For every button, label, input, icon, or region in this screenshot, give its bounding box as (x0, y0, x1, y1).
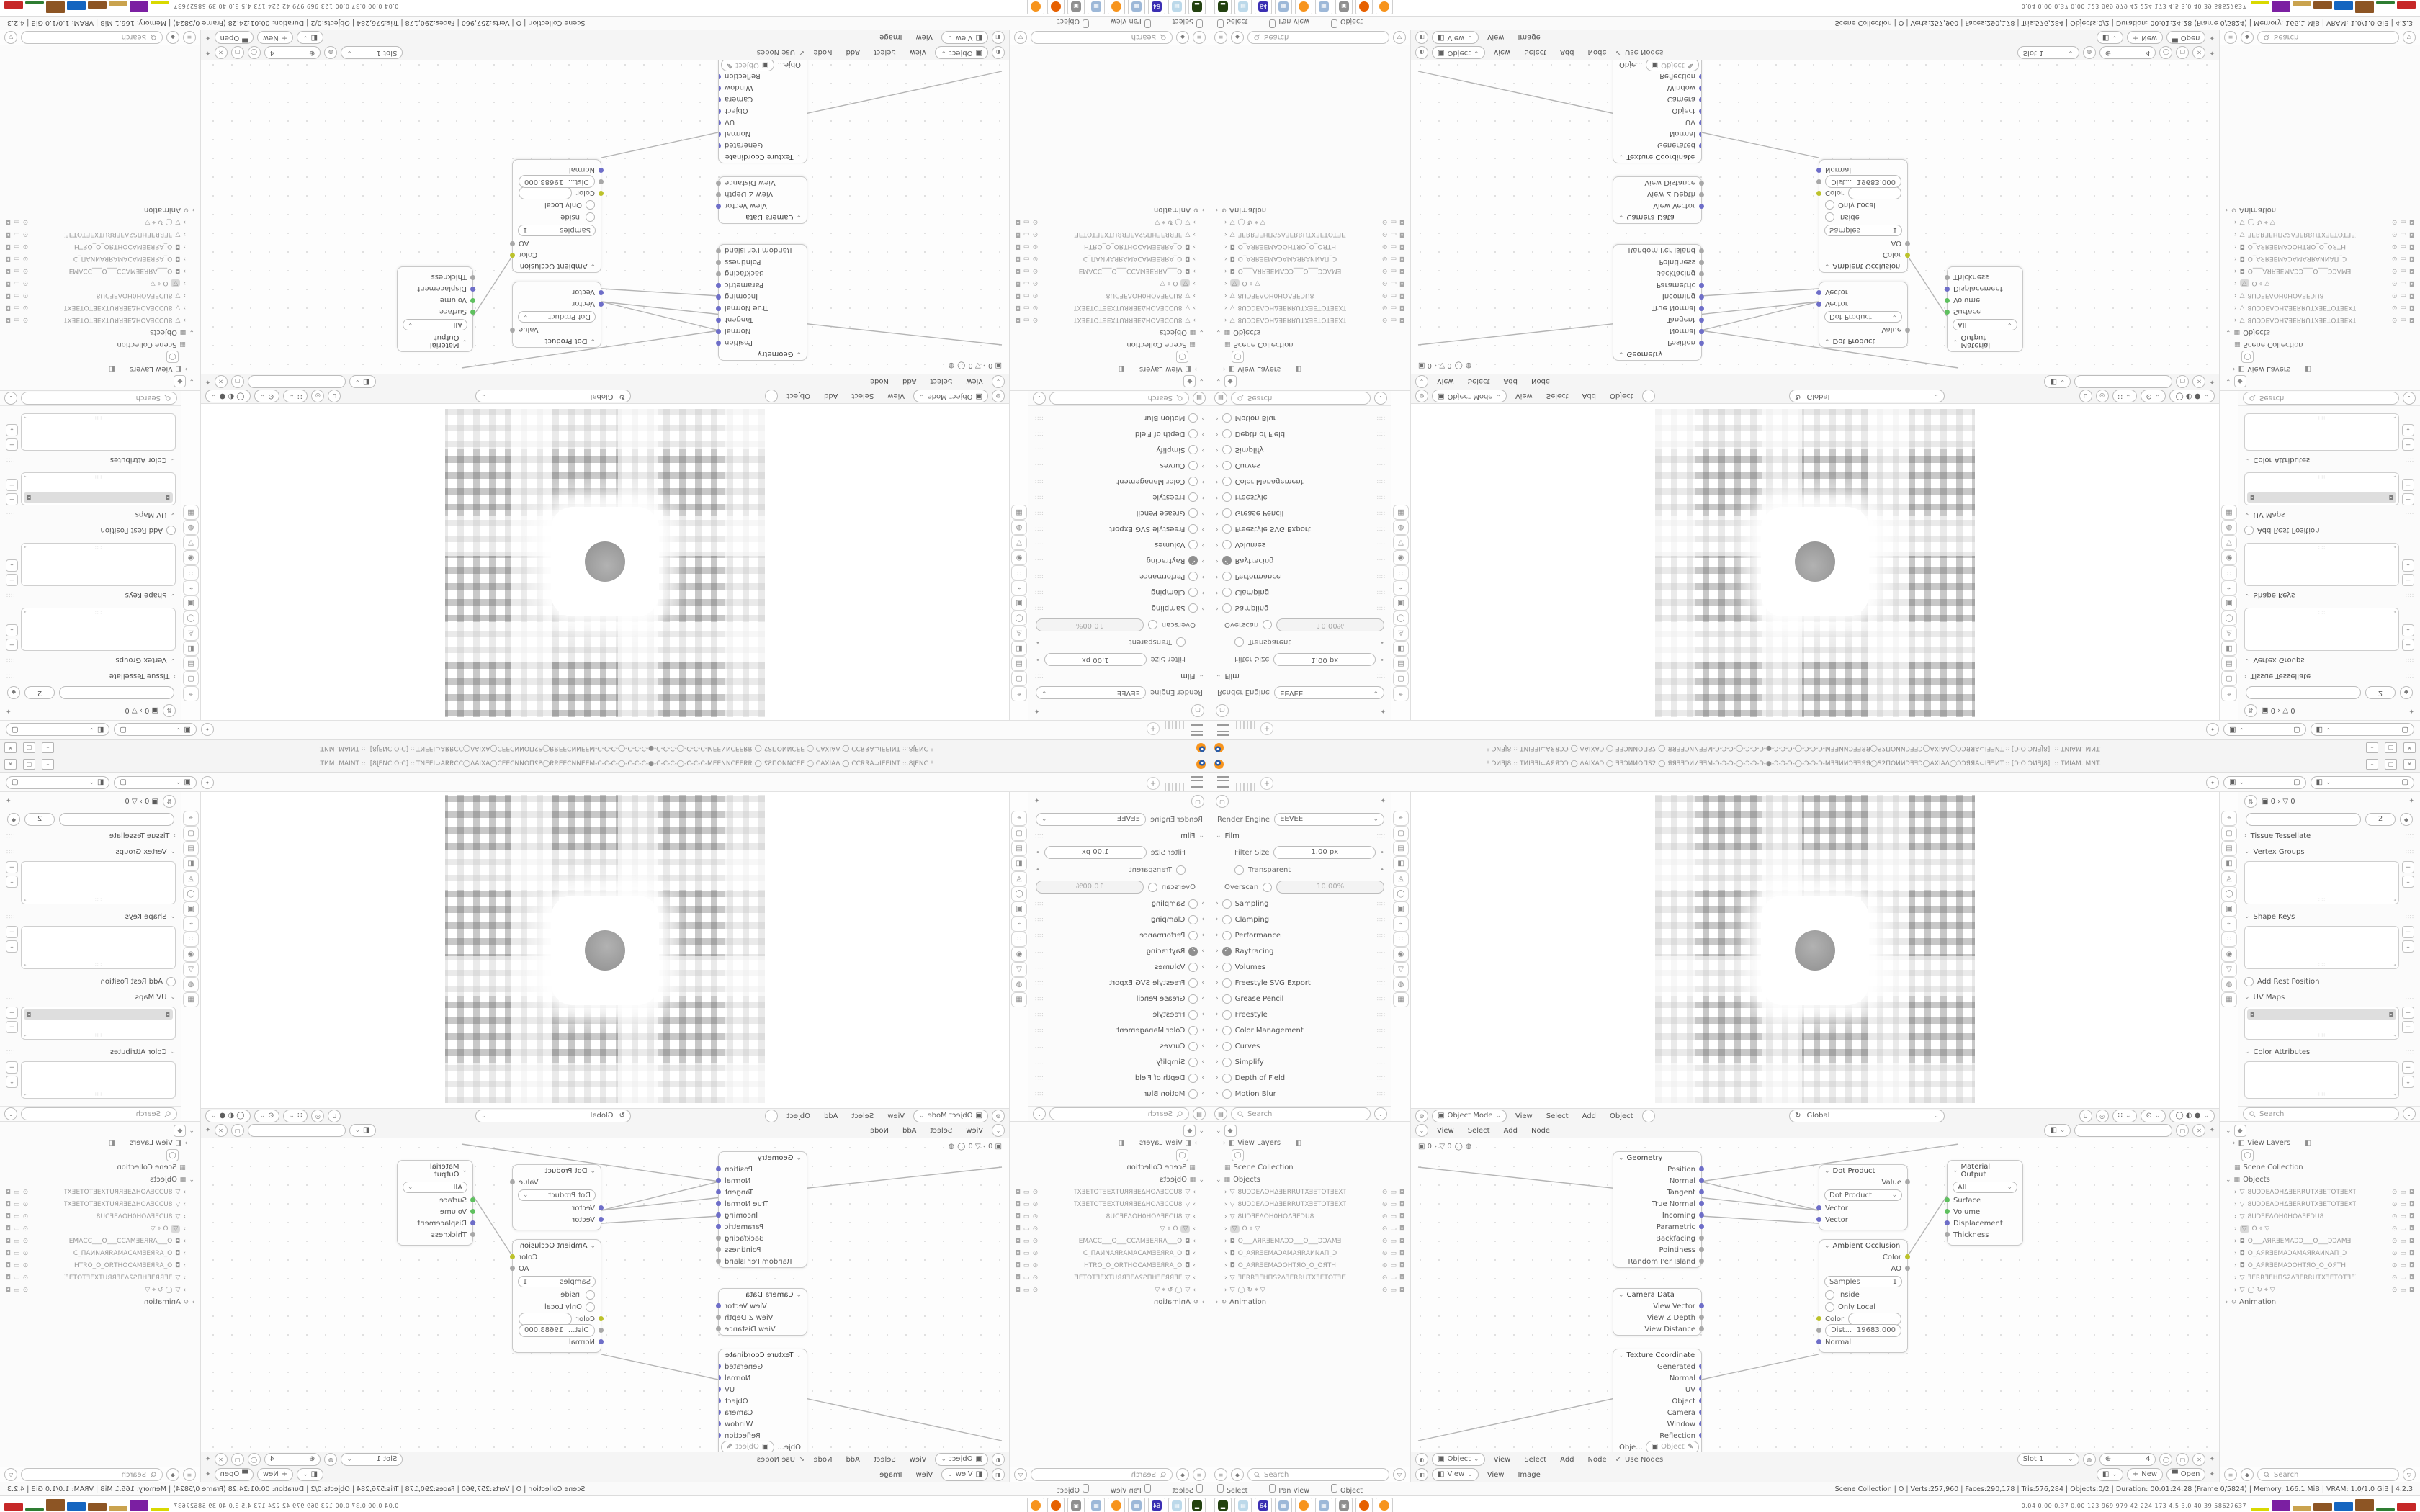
socket-dot[interactable] (1699, 1375, 1702, 1380)
properties-section-row[interactable]: › Color Management ∷∷ (1210, 1022, 1391, 1038)
funnel-filter-icon[interactable]: ▽ (1393, 1468, 1406, 1481)
disable-viewport-icon[interactable]: ▭ (1390, 243, 1397, 250)
hide-eye-icon[interactable]: ⊙ (2392, 292, 2398, 299)
hide-eye-icon[interactable]: ⊙ (23, 255, 29, 262)
image-view-dropdown[interactable]: ◧ View⌄ (1432, 1468, 1479, 1481)
shader-type-dropdown[interactable]: ▣ Object⌄ (935, 1453, 988, 1466)
menu-select[interactable]: Select (930, 1127, 952, 1135)
properties-tab-icon[interactable]: ◍ (1011, 977, 1027, 992)
menu-add[interactable]: Add (824, 1112, 838, 1120)
properties-tab-icon[interactable]: ⌁ (2221, 580, 2237, 595)
disable-viewport-icon[interactable]: ▭ (1390, 1238, 1397, 1245)
filter-icon-btn[interactable]: ◆ (2241, 31, 2254, 44)
disable-viewport-icon[interactable]: ▭ (14, 1287, 20, 1294)
options-dropdown-icon[interactable]: ⌄ (1033, 1107, 1046, 1120)
vertex-groups-listbox[interactable]: ∷∷◂ (2244, 608, 2399, 651)
view-layers-row[interactable]: ›◧View Layers◧ (3, 363, 197, 375)
outliner-object-row[interactable]: › ◘ O_AЯRƎEMAƆAMAЯRAИNAП_Ɔ ⊙▭◘ (3, 253, 197, 265)
taskbar-app-button[interactable] (1355, 1498, 1373, 1512)
fake-user-icon[interactable]: ◯ (2159, 1453, 2172, 1466)
taskbar-app-button[interactable]: ▣ (1067, 0, 1085, 14)
uv-map-item[interactable]: ◘◘ (2247, 1009, 2396, 1020)
outliner-object-row[interactable]: › ◘ O___AЯRƎEMAƆƆ___O___ƆƆAMƎ ⊙▭◘ (2223, 1235, 2417, 1247)
uv-maps-listbox[interactable]: ◘◘ ∷∷◂ (21, 472, 176, 505)
browse-material-icon[interactable]: ◍ (324, 46, 337, 59)
socket-dot[interactable] (599, 191, 604, 196)
outliner-object-row[interactable]: › ▽ 8UƆƎEΛOH0HOΛƎEƆU8 ⊙▭◘ (2223, 1210, 2417, 1223)
shading-mode-toggle[interactable]: ◯ ◐ ●⌄ (2169, 1110, 2215, 1122)
properties-section-row[interactable]: › Volumes ∷∷ (1028, 959, 1210, 975)
world-icon[interactable]: ◯ (2241, 351, 2254, 363)
socket-dot[interactable] (716, 1178, 721, 1183)
hide-eye-icon[interactable]: ⊙ (2392, 1262, 2398, 1269)
restore-button[interactable]: ▢ (23, 743, 35, 754)
outliner-search-input[interactable]: Search (2257, 1468, 2399, 1481)
close-button[interactable]: ✕ (2403, 743, 2416, 754)
socket-dot[interactable] (716, 329, 721, 334)
socket-dot[interactable] (599, 1328, 604, 1333)
properties-tab-icon[interactable]: ⌖ (183, 811, 199, 826)
copy-icon[interactable]: ▢ (2176, 1124, 2189, 1137)
node-canvas[interactable]: ▣ 0 › ▽ 0◯◍ ⌄Geometry Position Normal (201, 1138, 1009, 1452)
disable-viewport-icon[interactable]: ▭ (1390, 267, 1397, 274)
socket-dot[interactable] (1699, 1364, 1702, 1369)
disable-render-icon[interactable]: ◘ (6, 230, 11, 238)
disable-viewport-icon[interactable]: ▭ (1023, 1238, 1030, 1245)
section-checkbox[interactable] (1188, 1026, 1198, 1035)
add-button[interactable]: + (2402, 1007, 2414, 1019)
gizmo-toggle[interactable]: ∷⌄ (283, 1110, 308, 1122)
properties-tab-icon[interactable]: ◍ (183, 520, 199, 535)
disable-viewport-icon[interactable]: ▭ (1023, 1189, 1030, 1196)
properties-tab-icon[interactable]: ◧ (183, 641, 199, 656)
socket-dot[interactable] (1699, 120, 1702, 125)
outliner-object-row[interactable]: › ▽ O ⌖ ▽ ⊙▭◘ (1013, 277, 1207, 289)
disable-render-icon[interactable]: ◘ (1016, 243, 1021, 250)
disable-viewport-icon[interactable]: ▭ (1390, 1213, 1397, 1220)
view-layers-row[interactable]: ›◧View Layers◧ (2223, 363, 2417, 375)
socket-dot[interactable] (470, 1197, 475, 1202)
collapse-button[interactable]: ⌄ (6, 940, 18, 953)
socket-dot[interactable] (1699, 74, 1702, 79)
disable-viewport-icon[interactable]: ▭ (1023, 230, 1030, 238)
pin-icon[interactable]: ✦ (205, 1471, 211, 1478)
outliner-search-input[interactable]: Search (1031, 31, 1173, 44)
socket-dot[interactable] (718, 1410, 721, 1415)
browse-image-dropdown[interactable]: ◧⌄ (349, 1124, 376, 1137)
overscan-field[interactable]: 10.00% (1036, 618, 1144, 631)
outliner-object-row[interactable]: › ▽ 8UƆƆEΛOHΔƎERRUTXƎETOTƎEXT ⊙▭◘ (2223, 1198, 2417, 1210)
outliner-object-row[interactable]: › ▽ O ⌖ ▽ ⊙▭◘ (2223, 277, 2417, 289)
disable-render-icon[interactable]: ◘ (2409, 1225, 2414, 1233)
only-local-checkbox[interactable] (586, 200, 595, 210)
id-name-field[interactable] (248, 1124, 346, 1137)
properties-tab-icon[interactable]: ∷ (2221, 565, 2237, 580)
outliner-search-input[interactable]: Search (2257, 31, 2399, 44)
disable-viewport-icon[interactable]: ▭ (2400, 1250, 2406, 1257)
section-checkbox[interactable] (1188, 1010, 1198, 1020)
properties-tab-icon[interactable]: ◧ (183, 856, 199, 871)
color-attributes-section[interactable]: ⌄Color Attributes∷∷ (0, 1044, 181, 1060)
dot-product-node[interactable]: ⌄Dot Product Value Dot Product⌄ Vector (512, 1164, 601, 1230)
filter-icon-btn[interactable]: ◆ (1231, 31, 1244, 44)
section-checkbox[interactable] (1222, 1010, 1232, 1020)
pin-icon[interactable]: ✦ (1380, 798, 1386, 805)
properties-section-row[interactable]: › Raytracing ∷∷ (1028, 943, 1210, 959)
transparent-checkbox[interactable] (1176, 638, 1186, 647)
properties-tab-icon[interactable]: ⌖ (1393, 811, 1409, 826)
properties-tab-icon[interactable]: ▢ (2221, 671, 2237, 686)
section-checkbox[interactable] (1222, 462, 1232, 471)
section-checkbox[interactable] (1222, 477, 1232, 487)
section-checkbox[interactable] (1188, 994, 1198, 1004)
view-layer-selector[interactable]: ◧⌄▢ (6, 723, 109, 736)
taskbar-app-button[interactable] (1027, 1498, 1044, 1512)
properties-section-row[interactable]: › Clamping ∷∷ (1210, 912, 1391, 927)
gizmo-toggle[interactable]: ∷⌄ (2112, 390, 2137, 402)
filter-size-field[interactable]: 1.00 px (1044, 846, 1147, 859)
vertex-groups-section[interactable]: ⌄Vertex Groups∷∷ (0, 652, 181, 668)
only-local-checkbox[interactable] (586, 1302, 595, 1312)
disable-viewport-icon[interactable]: ▭ (1390, 1225, 1397, 1233)
disable-viewport-icon[interactable]: ▭ (1023, 218, 1030, 225)
disable-render-icon[interactable]: ◘ (6, 218, 11, 225)
properties-tab-icon[interactable]: ◉ (1011, 947, 1027, 962)
disable-viewport-icon[interactable]: ▭ (1390, 255, 1397, 262)
restore-button[interactable]: ▢ (2385, 743, 2397, 754)
view-layers-row[interactable]: ›◧View Layers◧ (1213, 363, 1407, 375)
disable-render-icon[interactable]: ◘ (2409, 1287, 2414, 1294)
collapse-button[interactable]: ⌄ (6, 559, 18, 572)
vector-math-operation-dropdown[interactable]: Dot Product⌄ (1824, 1189, 1902, 1201)
tissue-tessellate-section[interactable]: ›Tissue Tessellate∷∷ (0, 668, 181, 684)
menu-node[interactable]: Node (1588, 49, 1607, 57)
section-checkbox[interactable] (1222, 1074, 1232, 1083)
outliner-object-row[interactable]: › ◘ O___AЯRƎEMAƆƆ___O___ƆƆAMƎ ⊙▭◘ (3, 1235, 197, 1247)
shield-fake-user-icon[interactable]: ◆ (2400, 813, 2413, 826)
socket-dot[interactable] (1699, 192, 1704, 197)
hide-eye-icon[interactable]: ⊙ (1382, 255, 1388, 262)
properties-section-row[interactable]: › Simplify ∷∷ (1210, 442, 1391, 458)
shield-fake-user-icon[interactable]: ◆ (2400, 686, 2413, 699)
pin-icon[interactable]: ✦ (205, 49, 211, 56)
outliner-object-row[interactable]: › ▽ ◯ ↻ ⌖ ▽ ⊙▭◘ (1013, 1284, 1207, 1296)
hide-eye-icon[interactable]: ⊙ (2392, 1201, 2398, 1208)
properties-section-row[interactable]: › Freestyle ∷∷ (1210, 1007, 1391, 1022)
disable-render-icon[interactable]: ◘ (1016, 230, 1021, 238)
disable-viewport-icon[interactable]: ▭ (1023, 1287, 1030, 1294)
snap-magnet-icon[interactable]: U (328, 390, 341, 402)
properties-tab-icon[interactable]: ⌁ (183, 580, 199, 595)
filter-icon-btn[interactable]: ◆ (2241, 1468, 2254, 1481)
world-icon[interactable]: ◯ (1232, 1149, 1244, 1161)
taskbar-app-button[interactable]: 64 (1255, 1498, 1272, 1512)
socket-dot[interactable] (716, 1247, 721, 1252)
taskbar-app-button[interactable]: ▦ (1088, 0, 1105, 14)
taskbar-app-button[interactable] (1376, 1498, 1393, 1512)
properties-section-row[interactable]: › Depth of Field ∷∷ (1210, 426, 1391, 442)
properties-tab-icon[interactable]: ◉ (2221, 550, 2237, 565)
workspace-tab[interactable] (1179, 783, 1180, 791)
outliner-search-input[interactable]: Search (21, 1468, 163, 1481)
socket-dot[interactable] (1699, 143, 1702, 148)
transform-orientation-dropdown[interactable]: ↻Global⌄ (1789, 390, 1945, 402)
viewport-3d[interactable]: ⚙ ▣ Object Mode⌄ View Select Add Object … (1411, 792, 2219, 1123)
taskbar-app-button[interactable]: ▂ (1188, 0, 1206, 14)
socket-dot[interactable] (1945, 310, 1950, 315)
socket-dot[interactable] (1699, 1201, 1704, 1206)
section-checkbox[interactable] (1222, 525, 1232, 534)
properties-tab-icon[interactable]: ◬ (1393, 626, 1409, 641)
search-input[interactable]: Search (1049, 1107, 1189, 1120)
socket-dot[interactable] (716, 318, 721, 323)
pin-icon[interactable]: ✦ (6, 707, 12, 714)
disable-render-icon[interactable]: ◘ (6, 267, 11, 274)
add-button[interactable]: + (2402, 1061, 2414, 1074)
shader-type-dropdown[interactable]: ▣ Object⌄ (1432, 1453, 1485, 1466)
filter-menu-icon[interactable]: ▤ (1193, 392, 1206, 405)
color-attributes-section[interactable]: ⌄Color Attributes∷∷ (2238, 452, 2420, 468)
properties-tab-icon[interactable]: ◬ (1393, 871, 1409, 886)
menu-select[interactable]: Select (1546, 392, 1569, 400)
tool-settings-icon[interactable] (765, 1110, 778, 1122)
hide-eye-icon[interactable]: ⊙ (2392, 316, 2398, 323)
disable-viewport-icon[interactable]: ▭ (1390, 1201, 1397, 1208)
properties-section-row[interactable]: › Motion Blur ∷∷ (1028, 410, 1210, 426)
funnel-filter-icon[interactable]: ▽ (1393, 31, 1406, 44)
blend-file-icon[interactable]: ◆ (1224, 1125, 1237, 1137)
ambient-occlusion-node[interactable]: ⌄Ambient Occlusion Color AO Sample (512, 159, 601, 273)
disable-render-icon[interactable]: ◘ (2409, 230, 2414, 238)
hide-eye-icon[interactable]: ⊙ (2392, 1274, 2398, 1282)
menu-add[interactable]: Add (1560, 49, 1574, 57)
unlink-icon[interactable]: ✕ (2192, 1453, 2205, 1466)
disable-render-icon[interactable]: ◘ (2409, 243, 2414, 250)
properties-tab-icon[interactable]: ▣ (183, 901, 199, 917)
collapse-icon[interactable]: ⌄ (1415, 1124, 1428, 1137)
menu-image[interactable]: Image (1518, 1471, 1540, 1479)
outliner-object-row[interactable]: › ▽ 8UƆƎEΛOH0HOΛƎEƆU8 ⊙▭◘ (3, 1210, 197, 1223)
disable-viewport-icon[interactable]: ▭ (14, 1238, 20, 1245)
properties-section-row[interactable]: › Simplify ∷∷ (1028, 442, 1210, 458)
data-name-field[interactable] (59, 686, 174, 699)
properties-tab-icon[interactable]: ▽ (1393, 962, 1409, 977)
workspace-tab[interactable] (1236, 721, 1237, 729)
socket-dot[interactable] (1816, 1217, 1821, 1222)
properties-section-row[interactable]: › Clamping ∷∷ (1210, 585, 1391, 600)
use-nodes-label[interactable]: Use Nodes (757, 1456, 795, 1464)
pin-icon[interactable]: ✦ (1034, 707, 1040, 714)
properties-section-row[interactable]: › Clamping ∷∷ (1028, 585, 1210, 600)
menu-view[interactable]: View (910, 1456, 927, 1464)
properties-tab-icon[interactable]: ⌖ (1393, 686, 1409, 701)
color-attributes-listbox[interactable]: ∷∷◂ (21, 1061, 176, 1099)
disable-render-icon[interactable]: ◘ (1399, 316, 1404, 323)
outliner-object-row[interactable]: › ▽ ◯ ↻ ⌖ ▽ ⊙▭◘ (3, 1284, 197, 1296)
texture-coordinate-node[interactable]: ⌄Texture Coordinate Generated Normal (1613, 1349, 1702, 1452)
filter-icon-btn[interactable]: ◆ (1176, 1468, 1189, 1481)
add-button[interactable]: + (6, 574, 18, 586)
scene-collection-row[interactable]: ▦Scene Collection (1013, 1161, 1207, 1174)
shape-keys-listbox[interactable]: ∷∷◂ (21, 926, 176, 969)
editor-type-dropdown[interactable]: ◐ (992, 1453, 1005, 1466)
outliner-object-row[interactable]: › ▽ O ⌖ ▽ ⊙▭◘ (1013, 1223, 1207, 1235)
properties-tab-icon[interactable]: ◉ (2221, 947, 2237, 962)
properties-tab-icon[interactable]: ▢ (1393, 826, 1409, 841)
disable-render-icon[interactable]: ◘ (2409, 267, 2414, 274)
nav-icon[interactable]: ⇅ (163, 795, 176, 808)
socket-dot[interactable] (510, 253, 515, 258)
workspace-tab[interactable] (1183, 783, 1184, 791)
taskbar-app-button[interactable]: 64 (1148, 0, 1165, 14)
disable-render-icon[interactable]: ◘ (2409, 1250, 2414, 1257)
samples-field[interactable]: Samples1 (1824, 1276, 1902, 1287)
taskbar-app-button[interactable]: 64 (1255, 0, 1272, 14)
socket-dot[interactable] (1816, 302, 1821, 307)
disable-render-icon[interactable]: ◘ (6, 255, 11, 262)
pin-icon[interactable]: ✦ (205, 1127, 211, 1134)
menu-select[interactable]: Select (1546, 1112, 1569, 1120)
hide-eye-icon[interactable]: ⊙ (23, 1238, 29, 1245)
socket-dot[interactable] (716, 271, 721, 276)
menu-add[interactable]: Add (1504, 1127, 1518, 1135)
hamburger-menu-icon[interactable] (1217, 724, 1229, 736)
disable-viewport-icon[interactable]: ▭ (14, 292, 20, 299)
socket-dot[interactable] (599, 1316, 604, 1321)
disable-render-icon[interactable]: ◘ (1016, 1213, 1021, 1220)
slot-dropdown[interactable]: Slot 1⌄ (2017, 46, 2079, 59)
pin-icon[interactable]: ✦ (2206, 723, 2219, 736)
shading-mode-toggle[interactable]: ◯ ◐ ●⌄ (205, 390, 251, 402)
pin-icon[interactable]: ✦ (1034, 798, 1040, 805)
socket-dot[interactable] (716, 1189, 721, 1194)
distance-field[interactable]: Dist...19683.000 (519, 175, 595, 188)
workspace-tab[interactable] (1183, 721, 1184, 729)
disable-render-icon[interactable]: ◘ (6, 304, 11, 311)
disable-viewport-icon[interactable]: ▭ (14, 1189, 20, 1196)
add-rest-position-checkbox[interactable] (166, 977, 176, 986)
properties-section-row[interactable]: › Curves ∷∷ (1210, 1038, 1391, 1054)
socket-dot[interactable] (718, 132, 721, 137)
socket-dot[interactable] (718, 74, 721, 79)
unlink-icon[interactable]: ✕ (215, 1453, 228, 1466)
copy-icon[interactable]: ▢ (231, 375, 244, 388)
properties-section-row[interactable]: › Performance ∷∷ (1028, 569, 1210, 585)
socket-dot[interactable] (1699, 1387, 1702, 1392)
outliner-object-row[interactable]: › ▽ ƎERRƎEHПS2ΔƎERRUTXƎETOTƎEXT ⊙▭◘ (1013, 1272, 1207, 1284)
disable-render-icon[interactable]: ◘ (2409, 292, 2414, 299)
disable-render-icon[interactable]: ◘ (2409, 316, 2414, 323)
scene-collection-row[interactable]: ▦Scene Collection (1213, 338, 1407, 351)
display-mode-icon[interactable]: ≡ (183, 31, 196, 44)
properties-tab-icon[interactable]: ◉ (183, 550, 199, 565)
hide-eye-icon[interactable]: ⊙ (23, 279, 29, 287)
menu-view[interactable]: View (916, 1471, 933, 1479)
properties-tab-icon[interactable]: ◍ (2221, 520, 2237, 535)
menu-select[interactable]: Select (1468, 378, 1490, 386)
workspace-tab[interactable] (1254, 783, 1255, 791)
scene-collection-row[interactable]: ▦Scene Collection (1213, 1161, 1407, 1174)
pin-icon[interactable]: ✦ (2408, 707, 2414, 714)
section-checkbox[interactable] (1222, 947, 1232, 956)
properties-tab-icon[interactable]: ▢ (1011, 671, 1027, 686)
hide-eye-icon[interactable]: ⊙ (1382, 243, 1388, 250)
socket-dot[interactable] (510, 1179, 515, 1184)
section-checkbox[interactable] (1222, 915, 1232, 924)
hide-eye-icon[interactable]: ⊙ (1382, 1189, 1388, 1196)
menu-object[interactable]: Object (1610, 1112, 1633, 1120)
disable-render-icon[interactable]: ◘ (1016, 1189, 1021, 1196)
scene-collection-row[interactable]: ▦Scene Collection (2223, 1161, 2417, 1174)
outliner-object-row[interactable]: › ▽ 8UƆƆEΛOHΔƎERRUTXƎETOTƎEXT ⊙▭◘ (3, 1198, 197, 1210)
copy-icon[interactable]: ▢ (2176, 1453, 2189, 1466)
section-checkbox[interactable] (1222, 572, 1232, 582)
workspace-tab[interactable] (1240, 721, 1241, 729)
disable-render-icon[interactable]: ◘ (1016, 1274, 1021, 1282)
outliner-object-row[interactable]: › ◘ O_AЯRƎEMAƆOHTЯO_O_OЯTH ⊙▭◘ (2223, 240, 2417, 253)
disable-render-icon[interactable]: ◘ (2409, 1213, 2414, 1220)
disable-render-icon[interactable]: ◘ (1399, 1189, 1404, 1196)
scene-collection-row[interactable]: ▦Scene Collection (2223, 338, 2417, 351)
socket-dot[interactable] (1945, 287, 1950, 292)
outliner-object-row[interactable]: › ▽ ƎERRƎEHПS2ΔƎERRUTXƎETOTƎEXT ⊙▭◘ (1013, 228, 1207, 240)
blend-file-icon[interactable]: ◆ (174, 375, 186, 387)
taskbar-app-button[interactable]: ▦ (1315, 1498, 1332, 1512)
disable-render-icon[interactable]: ◘ (1399, 279, 1404, 287)
open-image-button[interactable]: ▀Open (215, 1468, 254, 1481)
film-section-header[interactable]: ⌄Film∷∷ (1210, 668, 1391, 684)
disable-viewport-icon[interactable]: ▭ (14, 1201, 20, 1208)
scene-collection-row[interactable]: ▦Scene Collection (3, 338, 197, 351)
unlink-icon[interactable]: ✕ (215, 1124, 228, 1137)
uv-maps-section[interactable]: ⌄UV Maps∷∷ (0, 989, 181, 1005)
dot-product-node[interactable]: ⌄Dot Product Value Dot Product⌄ Vector (512, 282, 601, 348)
scene-selector[interactable]: ▣⌄▢ (2223, 776, 2305, 789)
id-name-field[interactable] (2074, 375, 2172, 388)
menu-select[interactable]: Select (874, 49, 896, 57)
properties-tab-icon[interactable]: ◧ (1011, 641, 1027, 656)
socket-dot[interactable] (1699, 341, 1704, 346)
properties-section-row[interactable]: › Performance ∷∷ (1210, 927, 1391, 943)
overlays-toggle[interactable]: ⊙⌄ (254, 390, 280, 402)
add-button[interactable]: + (2402, 639, 2414, 651)
menu-select[interactable]: Select (1524, 49, 1546, 57)
socket-dot[interactable] (510, 241, 515, 246)
vertex-groups-section[interactable]: ⌄Vertex Groups∷∷ (2238, 844, 2420, 860)
hide-eye-icon[interactable]: ⊙ (1033, 1238, 1039, 1245)
color-attributes-section[interactable]: ⌄Color Attributes∷∷ (2238, 1044, 2420, 1060)
viewport-3d[interactable]: ⚙ ▣ Object Mode⌄ View Select Add Object … (201, 792, 1009, 1123)
socket-dot[interactable] (1816, 1205, 1821, 1210)
properties-tab-icon[interactable]: ⌁ (2221, 917, 2237, 932)
properties-tab-icon[interactable]: ◯ (2221, 886, 2237, 901)
object-picker[interactable]: ▣Object✎ (1646, 60, 1699, 71)
disable-render-icon[interactable]: ◘ (2409, 1274, 2414, 1282)
outliner-object-row[interactable]: › ◘ O___AЯRƎEMAƆƆ___O___ƆƆAMƎ ⊙▭◘ (1213, 265, 1407, 277)
outliner-object-row[interactable]: › ▽ 8UƆƎEΛOH0HOΛƎEƆU8 ⊙▭◘ (3, 289, 197, 302)
hide-eye-icon[interactable]: ⊙ (23, 292, 29, 299)
hide-eye-icon[interactable]: ⊙ (1382, 1201, 1388, 1208)
properties-section-row[interactable]: › Raytracing ∷∷ (1210, 553, 1391, 569)
disable-viewport-icon[interactable]: ▭ (14, 255, 20, 262)
fake-user-icon[interactable]: ◯ (248, 1453, 261, 1466)
animation-row[interactable]: ›↻Animation (1213, 1296, 1407, 1308)
properties-tab-icon[interactable]: ▦ (1011, 505, 1027, 520)
hide-eye-icon[interactable]: ⊙ (1033, 1274, 1039, 1282)
outliner-object-row[interactable]: › ◘ O_AЯRƎEMAƆAMAЯRAИNAП_Ɔ ⊙▭◘ (1013, 253, 1207, 265)
mode-dropdown[interactable]: ▣ Object Mode⌄ (913, 1110, 988, 1122)
hide-eye-icon[interactable]: ⊙ (1382, 1250, 1388, 1257)
